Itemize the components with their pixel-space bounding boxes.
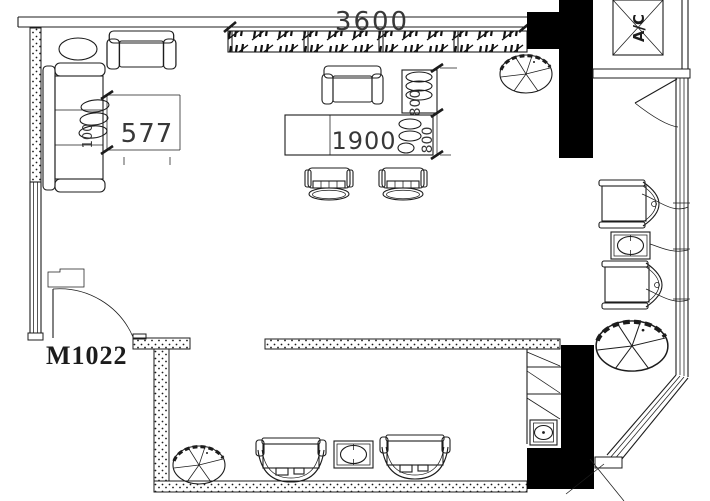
side-table (334, 441, 373, 468)
console-table: 1900 800 (285, 115, 436, 155)
dining-chair-pair-center (305, 168, 427, 200)
entry-door (48, 269, 146, 339)
partition-wall-mid (265, 339, 560, 349)
window-wall-right (673, 78, 690, 377)
plant (500, 55, 552, 93)
dining-chair (305, 168, 353, 200)
ac-unit-label: A/C (630, 14, 648, 42)
partition-wall-left (133, 338, 190, 481)
armchair-center (322, 66, 383, 104)
left-wall (28, 28, 43, 340)
armchair-top-left (107, 31, 176, 69)
dimension-sofa-clearance: 577 (101, 91, 180, 165)
lounge-chair (256, 438, 326, 482)
dim-sofa-depth-label: 100 (81, 124, 96, 149)
side-table (611, 232, 650, 259)
round-side-table (59, 38, 97, 60)
sofa (43, 63, 110, 192)
lounge-chair (380, 435, 450, 479)
plant (173, 446, 225, 484)
sink (530, 420, 557, 445)
dim-800-table-label: 800 (420, 127, 436, 154)
black-wall-top-right (527, 0, 593, 158)
dining-chair (379, 168, 427, 200)
floor-plan-canvas: 3600 M1022 A/C (0, 0, 710, 501)
cabinet-unit (527, 349, 561, 444)
bottom-seating-group (256, 435, 450, 482)
top-wall (18, 17, 527, 27)
dim-800-bench-label: 800 (408, 90, 424, 117)
dim-3600-label: 3600 (335, 7, 409, 37)
floor-plan: 3600 M1022 A/C (0, 0, 710, 501)
corridor-door (635, 79, 678, 127)
lounge-chair (602, 261, 662, 309)
door-code-label: M1022 (46, 341, 128, 370)
lounge-chair (599, 180, 659, 228)
corridor-beam (593, 69, 690, 78)
dim-1900-label: 1900 (331, 127, 396, 155)
dim-577-label: 577 (121, 119, 174, 149)
cushion-bench: 800 (402, 70, 437, 116)
plant (596, 321, 668, 371)
right-wall-top (682, 0, 688, 78)
ac-unit: A/C (613, 0, 663, 55)
